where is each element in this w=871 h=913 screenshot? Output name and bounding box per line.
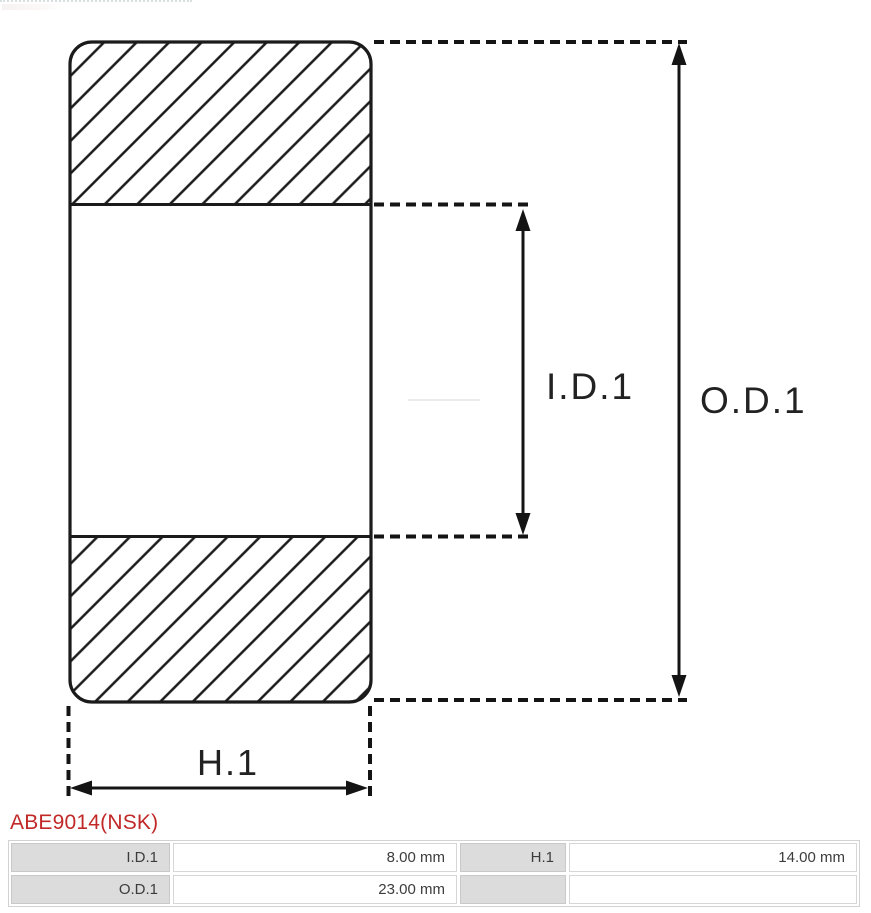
spec-row-1: I.D.1 8.00 mm H.1 14.00 mm: [11, 843, 857, 872]
bearing-diagram: I.D.1 O.D.1 H.1: [0, 0, 871, 811]
arrowhead-id-bottom: [516, 513, 531, 535]
spec-label-h1: H.1: [460, 843, 566, 872]
spec-value-empty: [569, 875, 857, 904]
bearing-diagram-svg: I.D.1 O.D.1 H.1: [0, 0, 871, 806]
spec-value-id1: 8.00 mm: [173, 843, 457, 872]
spec-label-empty: [460, 875, 566, 904]
hatch-bands: [70, 42, 371, 702]
part-number-link[interactable]: ABE9014(NSK): [10, 810, 158, 836]
dimension-arrow-od: [672, 43, 687, 697]
label-inner-diameter: I.D.1: [546, 366, 634, 407]
hatch-top-band: [70, 42, 371, 205]
spec-value-od1: 23.00 mm: [173, 875, 457, 904]
spec-row-2: O.D.1 23.00 mm: [11, 875, 857, 904]
arrowhead-h-left: [70, 781, 92, 796]
label-height: H.1: [197, 742, 259, 783]
arrowhead-h-right: [346, 781, 368, 796]
arrowhead-od-top: [672, 43, 687, 65]
label-outer-diameter: O.D.1: [700, 380, 807, 421]
product-diagram-page: I.D.1 O.D.1 H.1 ABE9014(NSK) I.D.1 8.00 …: [0, 0, 871, 913]
arrowhead-id-top: [516, 209, 531, 231]
spec-label-id1: I.D.1: [11, 843, 170, 872]
spec-value-h1: 14.00 mm: [569, 843, 857, 872]
dimension-arrow-id: [516, 209, 531, 535]
spec-label-od1: O.D.1: [11, 875, 170, 904]
spec-table: I.D.1 8.00 mm H.1 14.00 mm O.D.1 23.00 m…: [8, 840, 860, 907]
arrowhead-od-bottom: [672, 675, 687, 697]
hatch-bottom-band: [70, 537, 371, 703]
